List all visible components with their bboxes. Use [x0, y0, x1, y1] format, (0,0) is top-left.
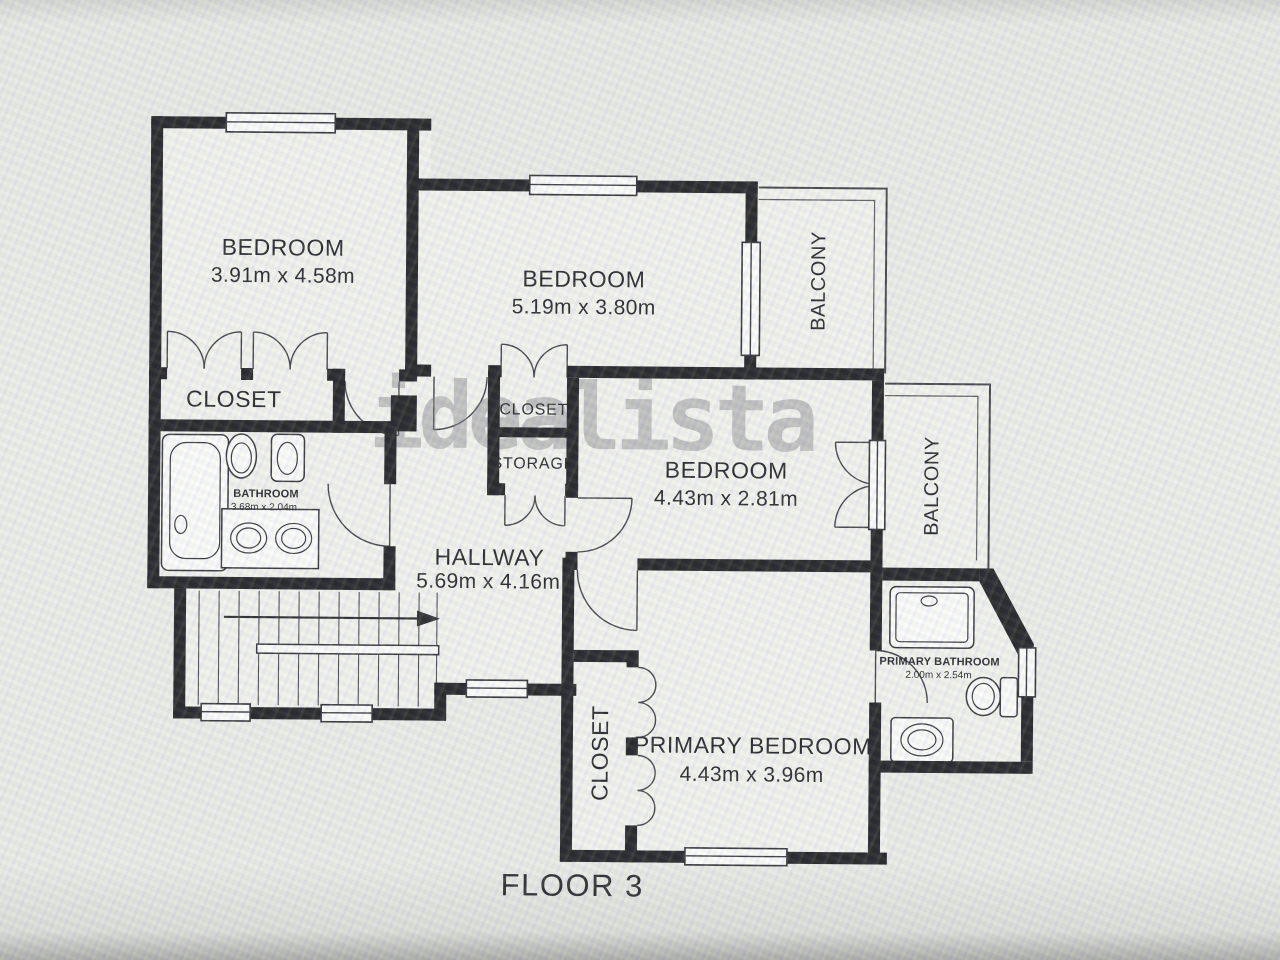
primary-bidet: [891, 718, 953, 763]
window-primary-bedroom: [685, 848, 787, 866]
window-bedroom-top-left: [226, 113, 335, 133]
double-sink-vanity: [221, 509, 319, 569]
room-label: BEDROOM: [522, 265, 645, 292]
floorplan-drawing: idealista: [0, 0, 1280, 960]
room-dims: 2.00m x 2.54m: [905, 670, 971, 682]
floor-caption: FLOOR 3: [500, 867, 643, 903]
room-dims: 4.43m x 3.96m: [679, 763, 823, 787]
room-label: HALLWAY: [434, 544, 544, 571]
primary-toilet: [966, 677, 1017, 716]
room-dims: 5.69m x 4.16m: [416, 569, 560, 593]
window-bedroom-top-mid: [530, 175, 637, 195]
floorplan-photo: idealista: [0, 0, 1280, 960]
room-closet-mid: CLOSET: [499, 401, 568, 419]
room-label: BEDROOM: [665, 457, 788, 484]
room-label: PRIMARY BEDROOM: [634, 731, 872, 759]
room-dims: 3.68m x 2.04m: [231, 502, 297, 514]
room-dims: 4.43m x 2.81m: [654, 487, 798, 511]
toilet: [226, 434, 256, 478]
room-balcony-top: BALCONY: [807, 231, 830, 331]
room-balcony-right: BALCONY: [921, 436, 944, 536]
room-dims: 3.91m x 4.58m: [211, 264, 355, 288]
room-storage: STORAGE: [491, 455, 575, 473]
window-hallway: [466, 680, 527, 698]
bidet: [271, 434, 304, 481]
room-dims: 5.19m x 3.80m: [512, 295, 656, 319]
window-stairs-2: [321, 705, 372, 722]
window-balcony-door-top: [741, 242, 760, 355]
room-closet-primary: CLOSET: [586, 705, 613, 801]
window-primary-bathroom: [1018, 648, 1035, 697]
window-stairs-1: [201, 704, 250, 721]
bathtub: [161, 434, 228, 571]
room-label: BEDROOM: [222, 234, 345, 261]
shower-tray: [890, 587, 975, 649]
stair-rail: [257, 644, 439, 655]
french-door-balcony-right: [869, 440, 886, 529]
room-label: BATHROOM: [233, 488, 299, 501]
room-hallway: HALLWAY 5.69m x 4.16m: [416, 543, 561, 593]
room-label: PRIMARY BATHROOM: [879, 656, 999, 669]
room-closet-left: CLOSET: [186, 385, 282, 412]
